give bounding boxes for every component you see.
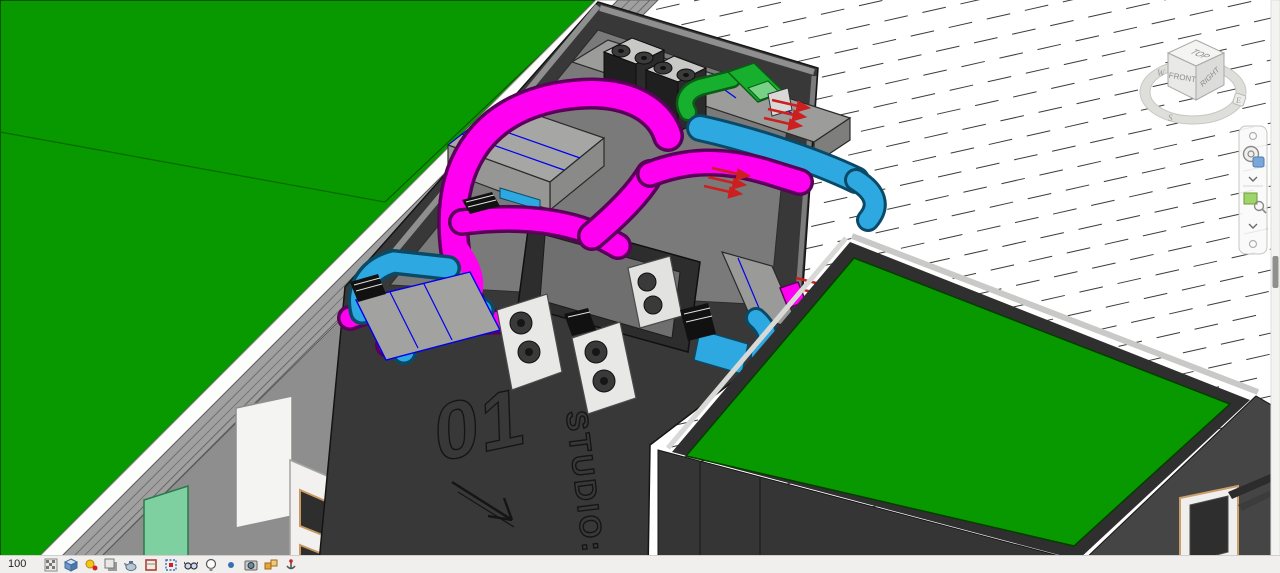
- compass-east-label[interactable]: E: [1235, 96, 1241, 105]
- show-analytical-model-button[interactable]: [244, 558, 258, 572]
- detail-level-button[interactable]: [44, 558, 58, 572]
- highlight-displacement-sets-button[interactable]: [264, 558, 278, 572]
- facade-unit-number: 01: [433, 370, 527, 480]
- view-control-icons: [44, 556, 298, 572]
- temporary-view-properties-button[interactable]: [224, 558, 238, 572]
- compass-south-label[interactable]: S: [1168, 113, 1173, 123]
- scrollbar-thumb[interactable]: [1273, 256, 1279, 288]
- facade-panel-white: [236, 396, 292, 528]
- reveal-constraints-button[interactable]: [284, 558, 298, 572]
- revit-3d-viewport[interactable]: 01 STUDIO: P: [0, 0, 1280, 573]
- temporary-hide-isolate-button[interactable]: [184, 558, 198, 572]
- show-crop-region-button[interactable]: [164, 558, 178, 572]
- shadows-button[interactable]: [104, 558, 118, 572]
- navigation-bar: [1239, 126, 1267, 254]
- rendering-dialog-button[interactable]: [124, 558, 138, 572]
- reveal-hidden-elements-button[interactable]: [204, 558, 218, 572]
- crop-view-button[interactable]: [144, 558, 158, 572]
- vertical-scrollbar: [1271, 0, 1280, 556]
- sun-path-button[interactable]: [84, 558, 98, 572]
- view-scale-button[interactable]: 100: [0, 556, 44, 570]
- visual-style-button[interactable]: [64, 558, 78, 572]
- view-control-bar: 100: [0, 555, 1280, 573]
